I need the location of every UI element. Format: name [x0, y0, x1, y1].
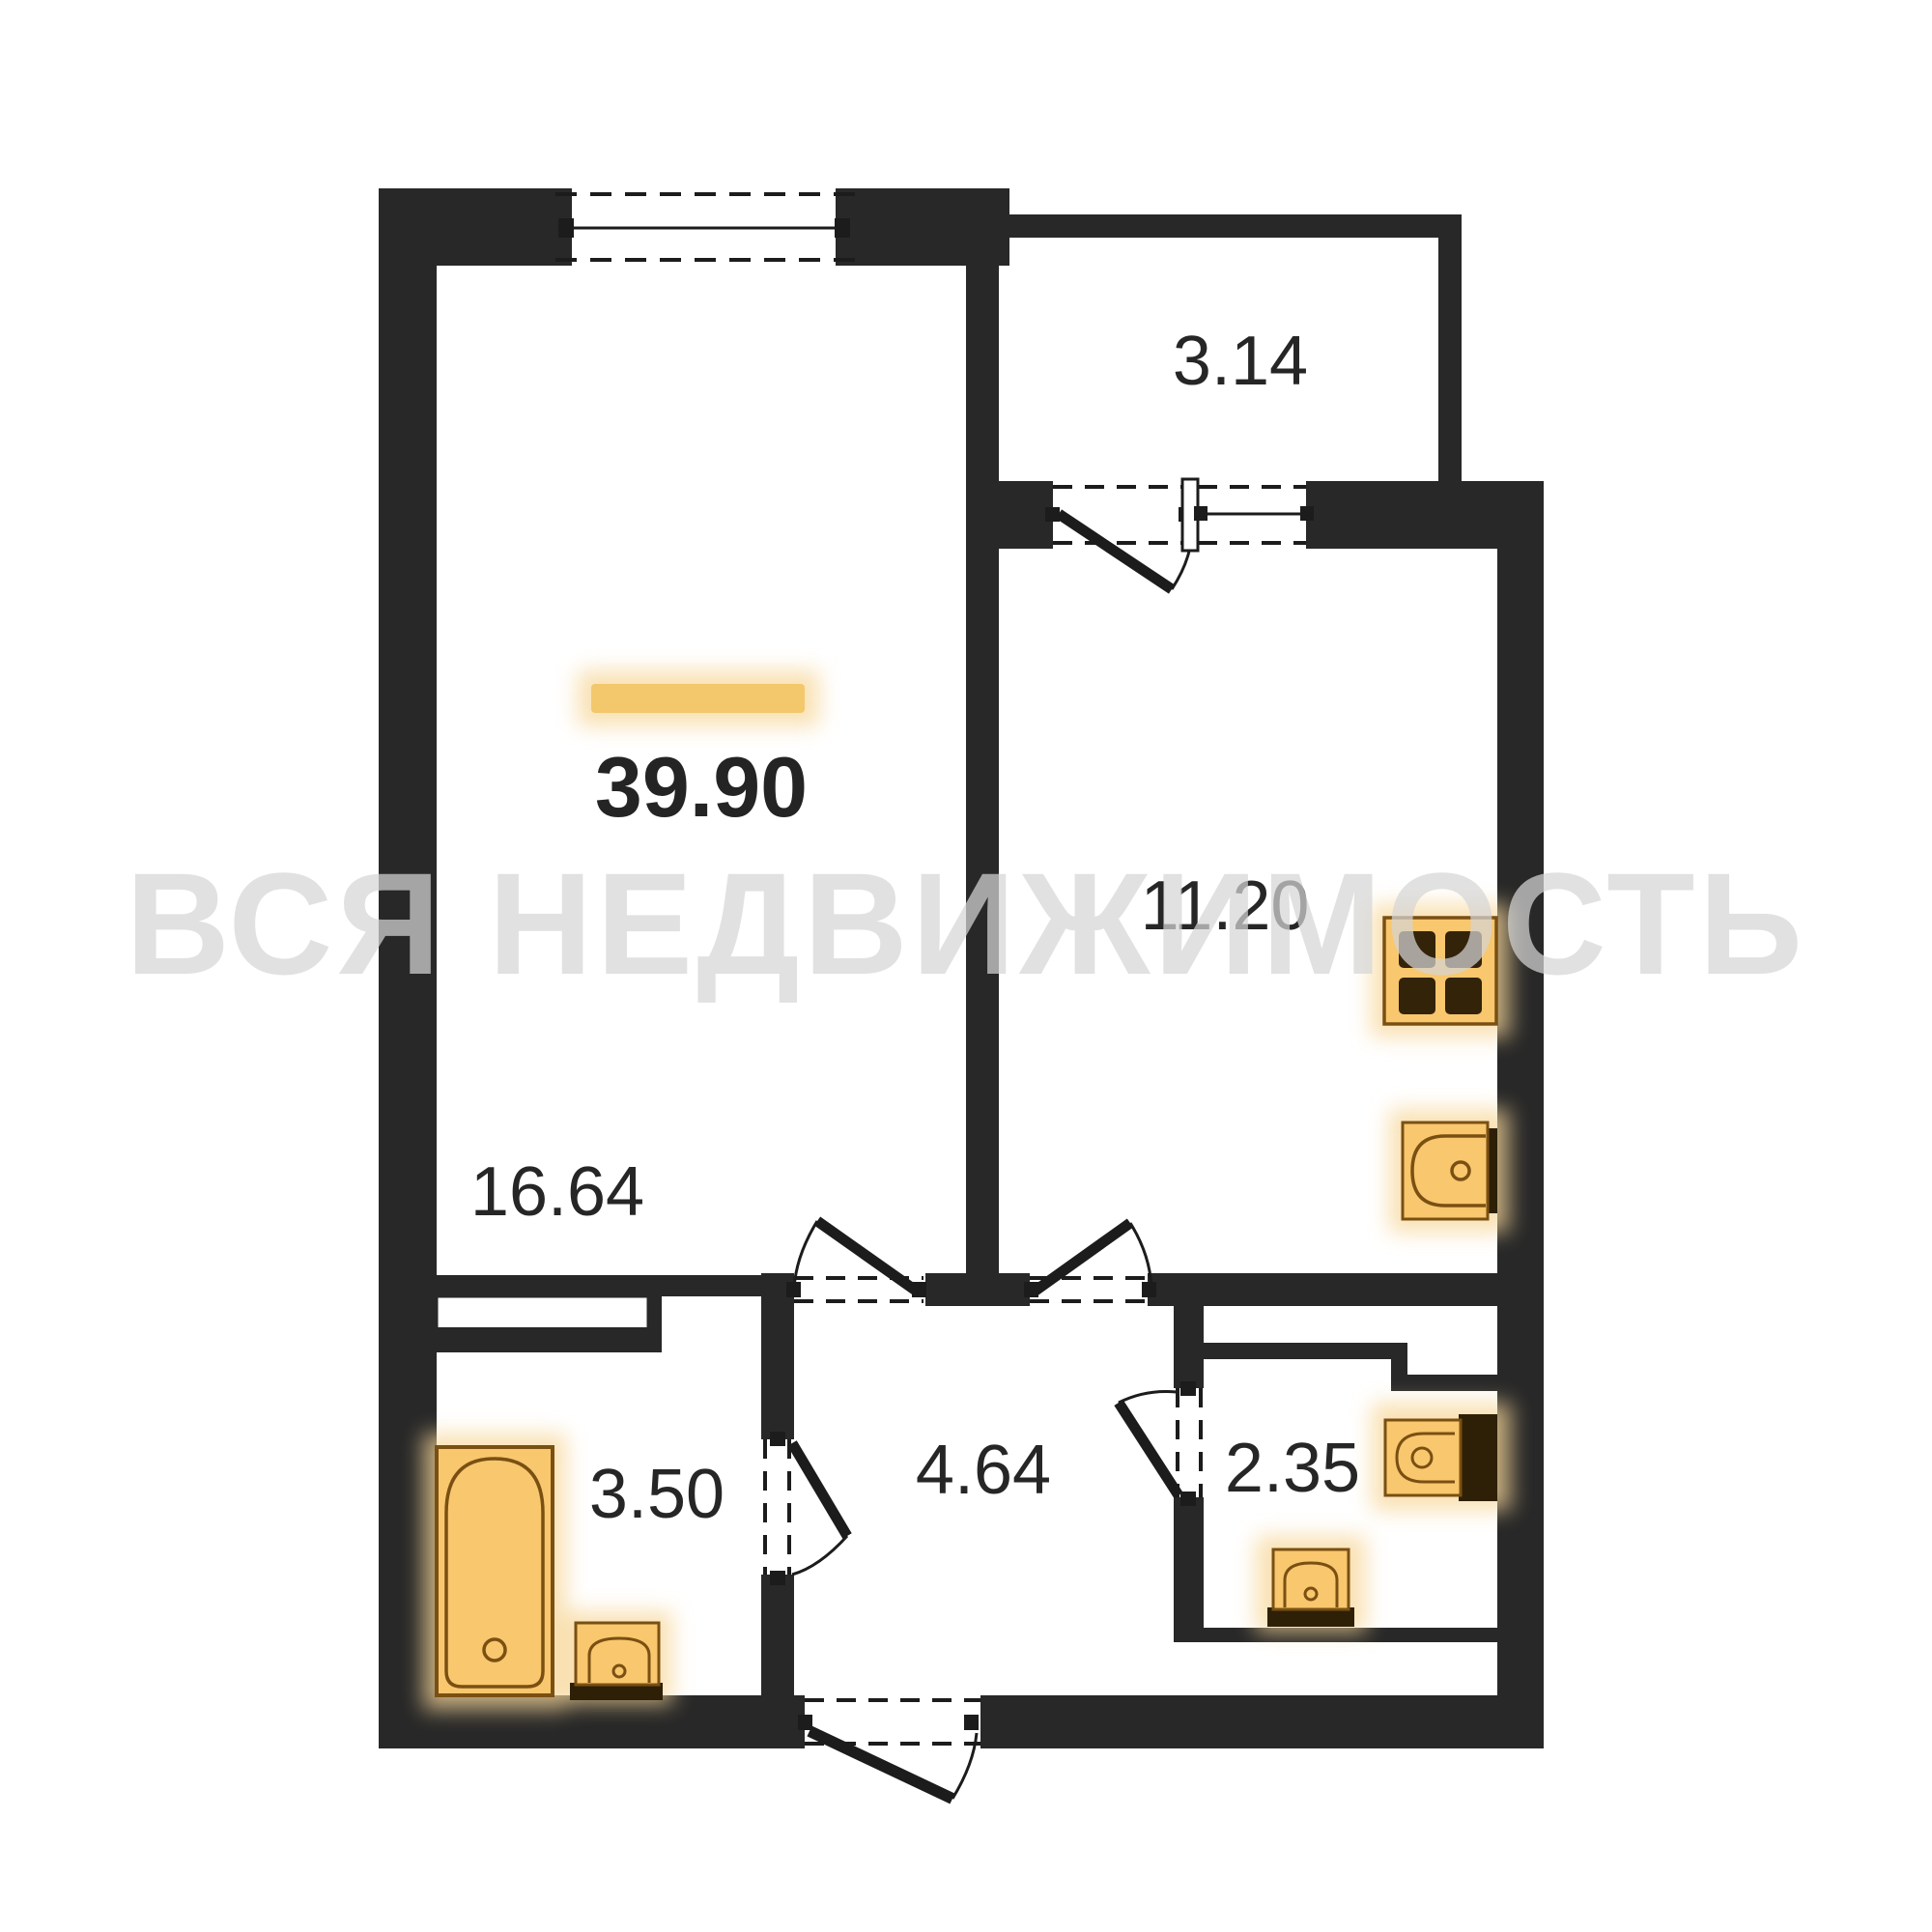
balcony-door-icon [1045, 479, 1314, 589]
toilet-icon [1385, 1414, 1497, 1501]
watermark: ВСЯ НЕДВИЖИМОСТЬ [126, 842, 1806, 1005]
living-room-area-label: 16.64 [470, 1153, 644, 1231]
floorplan-canvas: 39.90 16.64 11.20 3.14 3.50 4.64 2.35 ВС… [0, 0, 1932, 1932]
wc-sink-icon [1267, 1549, 1354, 1627]
total-area-label: 39.90 [595, 739, 808, 835]
bathroom-sink-icon [570, 1623, 663, 1700]
living-room-door-icon [786, 1221, 926, 1301]
hallway-area-label: 4.64 [916, 1432, 1051, 1509]
bathroom-duct-box [437, 1296, 662, 1352]
kitchen-door-icon [1024, 1223, 1156, 1301]
kitchen-sink-icon [1403, 1122, 1497, 1219]
entrance-door-icon [798, 1700, 980, 1799]
wc-area-label: 2.35 [1225, 1430, 1360, 1507]
bathtub-icon [437, 1447, 553, 1695]
wc-door-icon [1119, 1381, 1201, 1506]
living-room-window-icon [555, 194, 855, 260]
bathroom-door-icon [765, 1432, 847, 1585]
area-accent-bar [591, 684, 805, 713]
bathroom-area-label: 3.50 [589, 1456, 724, 1533]
floorplan-drawing: 39.90 16.64 11.20 3.14 3.50 4.64 2.35 ВС… [0, 0, 1932, 1932]
balcony-area-label: 3.14 [1173, 323, 1308, 400]
